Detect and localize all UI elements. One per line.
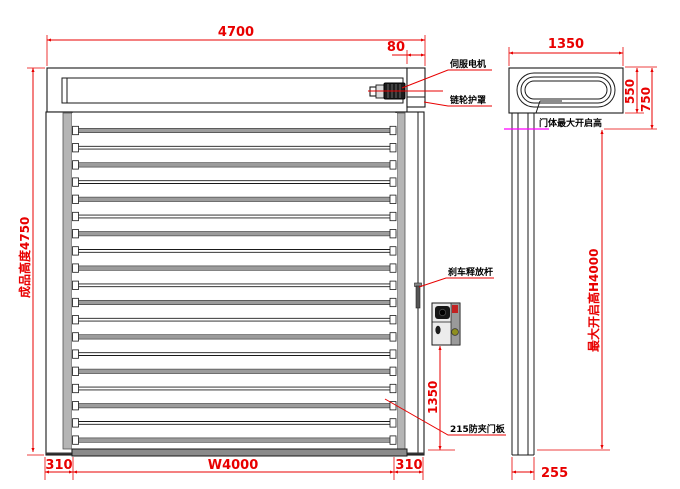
cad-drawing-page: 4700 80 成品高度4750 310 W4000 310 [0, 0, 680, 489]
dim-total-height: 成品高度4750 [17, 217, 32, 298]
control-box [432, 303, 460, 345]
sprocket-guard-box [407, 68, 425, 107]
dim-total-depth: 1350 [548, 37, 584, 52]
dim-motor-side: 80 [387, 40, 405, 55]
front-labels: 伺服电机 链轮护罩 刹车释放杆 215防夹门板 [448, 58, 506, 435]
control-red-button [452, 305, 458, 313]
dim-header-drop: 750 [639, 87, 653, 112]
guide-column-left [46, 112, 72, 455]
dim-max-opening-height: 最大开启高H4000 [586, 249, 601, 352]
label-brake-release-lever: 刹车释放杆 [448, 266, 493, 278]
label-anti-pinch-panel: 215防夹门板 [450, 423, 506, 435]
dim-left-column: 310 [45, 458, 72, 473]
dim-control-height: 1350 [426, 381, 440, 414]
control-yellow-button [452, 329, 459, 336]
guide-rail-right [397, 113, 405, 449]
label-servo-motor: 伺服电机 [449, 58, 486, 70]
control-key-slot [435, 326, 440, 334]
label-sprocket-guard: 链轮护罩 [450, 94, 486, 106]
side-view: 门体最大开启高 1350 550 750 最大开启高H4000 [504, 37, 657, 481]
dim-rail-depth: 255 [541, 466, 568, 481]
label-max-opening: 门体最大开启高 [539, 117, 602, 129]
dim-total-width: 4700 [218, 25, 254, 40]
dim-right-column: 310 [395, 458, 422, 473]
dim-opening-width: W4000 [208, 458, 259, 473]
front-view: 4700 80 成品高度4750 310 W4000 310 [17, 25, 506, 480]
hood-box [47, 68, 407, 112]
bottom-bar [72, 449, 407, 456]
side-guide-column [512, 113, 534, 455]
roller-door-technical-drawing: 4700 80 成品高度4750 310 W4000 310 [0, 0, 680, 489]
guide-rail-left [63, 113, 72, 449]
roll-box [509, 68, 623, 113]
dim-roll-box-height: 550 [623, 79, 637, 104]
